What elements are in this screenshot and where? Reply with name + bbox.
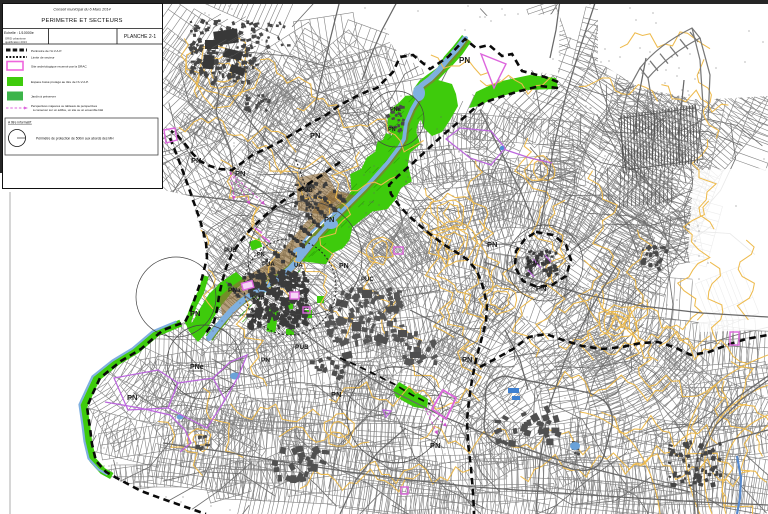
- svg-text:PERIMETRE ET SECTEURS: PERIMETRE ET SECTEURS: [41, 18, 122, 24]
- svg-text:PUB: PUB: [300, 188, 313, 194]
- svg-text:qualification 2013: qualification 2013: [5, 40, 27, 44]
- svg-text:PUC: PUC: [361, 277, 374, 283]
- svg-text:PNa: PNa: [390, 107, 402, 113]
- svg-text:PN: PN: [339, 263, 349, 270]
- svg-text:Limite de secteur: Limite de secteur: [31, 56, 55, 60]
- svg-text:PUA: PUA: [252, 296, 265, 302]
- svg-text:PN: PN: [462, 355, 472, 364]
- svg-text:PN: PN: [536, 284, 546, 293]
- svg-text:PN: PN: [459, 56, 470, 65]
- svg-text:PUB: PUB: [224, 248, 237, 254]
- svg-text:PN: PN: [331, 390, 341, 399]
- svg-text:PUA: PUA: [527, 261, 540, 267]
- svg-text:PN: PN: [487, 240, 497, 249]
- svg-text:Echelle : 1/10000e: Echelle : 1/10000e: [4, 31, 34, 35]
- svg-text:PN: PN: [430, 441, 440, 450]
- svg-text:PN: PN: [388, 127, 396, 133]
- svg-text:PN: PN: [324, 215, 334, 224]
- svg-text:PN: PN: [191, 156, 201, 165]
- svg-text:PUA: PUA: [262, 262, 275, 268]
- svg-text:Espace boisé protégé au titre: Espace boisé protégé au titre de l'A.V.A…: [31, 80, 89, 84]
- svg-text:PLANCHE 2-1: PLANCHE 2-1: [124, 34, 156, 40]
- svg-text:PN: PN: [235, 169, 245, 178]
- svg-text:A titre informatif:: A titre informatif:: [8, 121, 32, 125]
- svg-text:Périmètre de protection de 500: Périmètre de protection de 500m aux abor…: [36, 137, 114, 141]
- svg-text:PN: PN: [261, 357, 270, 364]
- svg-text:PN: PN: [257, 252, 265, 258]
- svg-text:PN: PN: [190, 309, 200, 318]
- svg-text:PNe: PNe: [190, 364, 204, 371]
- svg-text:PNa: PNa: [228, 287, 241, 294]
- svg-text:à conserver sur un édifice, un: à conserver sur un édifice, un site ou u…: [33, 108, 103, 112]
- svg-text:Conseil municipal du 6 Mars 20: Conseil municipal du 6 Mars 2014: [53, 8, 110, 12]
- svg-text:Périmètre de l'A.V.A.P.: Périmètre de l'A.V.A.P.: [31, 49, 62, 53]
- svg-text:PN: PN: [127, 393, 137, 402]
- svg-text:PN: PN: [310, 131, 320, 140]
- svg-text:Jardin à préserver: Jardin à préserver: [31, 95, 56, 99]
- svg-text:UA: UA: [294, 263, 303, 269]
- svg-text:Site archéologique recensé par: Site archéologique recensé par la DRAC: [31, 65, 87, 69]
- svg-text:PUB: PUB: [295, 344, 309, 351]
